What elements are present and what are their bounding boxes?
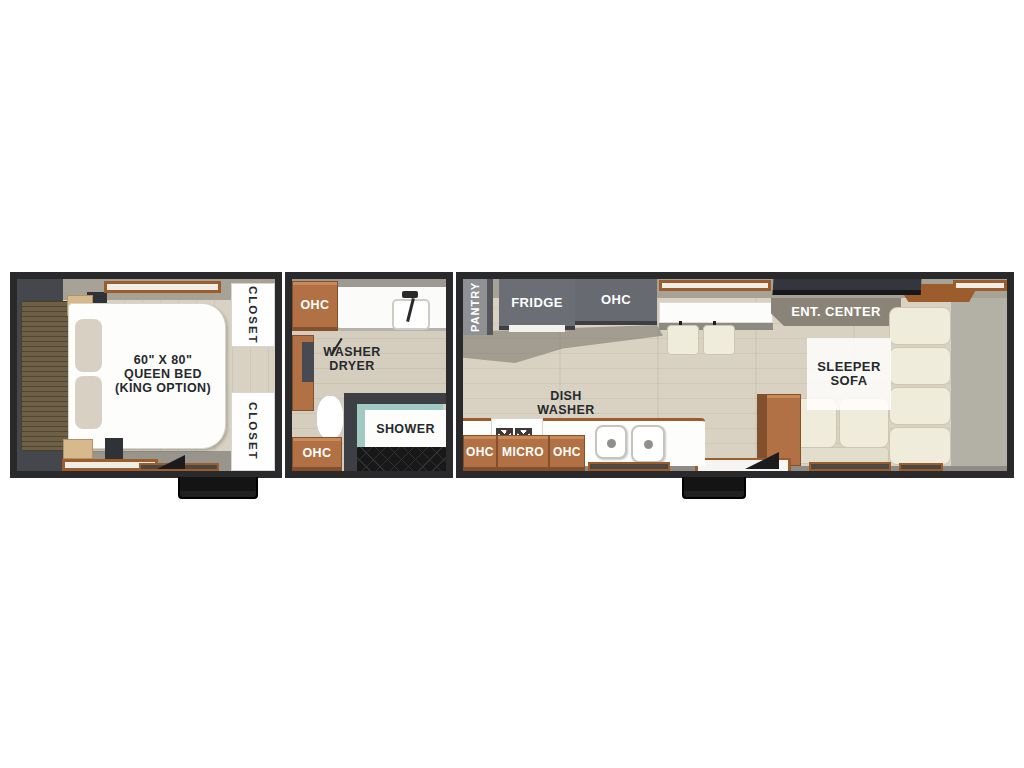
washer-label: WASHER <box>296 345 408 359</box>
fridge: FRIDGE <box>499 279 575 330</box>
bathroom-ohc-top-label: OHC <box>301 298 330 312</box>
kitchen-ohc-top: OHC <box>575 279 657 325</box>
kitchen-ohc-left: OHC <box>463 435 497 471</box>
sofa-back-cushion <box>889 347 951 385</box>
living-bottom-window <box>809 462 891 471</box>
dryer-label: DRYER <box>296 359 408 373</box>
pillow <box>75 376 102 429</box>
pillow <box>75 319 102 372</box>
micro-label: MICRO <box>502 445 544 459</box>
nightstand-bottom <box>63 439 93 459</box>
shower-tile-floor <box>357 447 446 471</box>
kitchen-living-section: PANTRY FRIDGE OHC ENT. CENTER SLEEPER SO… <box>456 272 1014 478</box>
rear-bottom-trim <box>899 463 943 471</box>
bedroom-corner-cabinet-bottom <box>105 438 123 460</box>
bathroom-ohc-bottom: OHC <box>292 437 342 471</box>
bedroom-top-window <box>104 281 221 293</box>
rear-top-trim <box>953 280 1007 291</box>
dish-washer-label: DISH WASHER <box>506 389 626 417</box>
bathroom-ohc-bottom-label: OHC <box>303 446 332 460</box>
dinette-table <box>659 302 773 323</box>
kitchen-bottom-window <box>588 462 670 471</box>
sink-drain <box>644 440 653 449</box>
toilet <box>316 395 344 439</box>
bed-label-type: QUEEN BED <box>99 367 227 381</box>
vanity-counter <box>335 287 446 331</box>
sleeper-sofa-label-box: SLEEPER SOFA <box>807 338 891 410</box>
living-dresser <box>757 394 801 466</box>
pantry: PANTRY <box>463 279 493 335</box>
washer-dryer-label: WASHER DRYER <box>296 345 408 373</box>
entry-step-main <box>682 477 746 499</box>
closet-bottom-label: CLOSET <box>247 402 259 461</box>
pantry-label: PANTRY <box>469 282 481 332</box>
sleeper-sofa-label-2: SOFA <box>831 374 868 388</box>
closet-bottom: CLOSET <box>231 392 275 471</box>
sleeper-sofa-label-1: SLEEPER <box>817 360 880 374</box>
sofa-back-cushion <box>889 387 951 425</box>
kitchen-sink-basin <box>595 425 627 459</box>
sofa-corner-cushion <box>889 427 951 465</box>
ent-center-label: ENT. CENTER <box>791 305 881 319</box>
headboard-panel <box>21 301 73 451</box>
ent-center: ENT. CENTER <box>771 298 901 326</box>
shower-wall-top <box>344 393 446 404</box>
faucet-icon <box>402 291 418 298</box>
kitchen-ohc-right-label: OHC <box>553 445 581 459</box>
entry-step-bedroom <box>178 477 258 499</box>
shower: SHOWER <box>344 393 446 471</box>
bed-label: 60" X 80" QUEEN BED (KING OPTION) <box>99 353 227 395</box>
bathroom-ohc-top: OHC <box>292 281 338 331</box>
dinette-stool <box>703 325 735 355</box>
washer-label-2: WASHER <box>506 403 626 417</box>
closet-top-label: CLOSET <box>247 286 259 345</box>
kitchen-ohc-top-label: OHC <box>601 293 631 307</box>
closet-top: CLOSET <box>231 283 275 347</box>
sofa-back-cushion <box>889 307 951 345</box>
queen-bed: 60" X 80" QUEEN BED (KING OPTION) <box>68 303 226 449</box>
kitchen-ohc-left-label: OHC <box>466 445 494 459</box>
tv <box>773 279 922 295</box>
fridge-label: FRIDGE <box>511 296 563 310</box>
fridge-door-edge <box>509 325 565 332</box>
bed-label-size: 60" X 80" <box>99 353 227 367</box>
sink-drain <box>607 439 616 448</box>
dinette-window <box>659 280 771 291</box>
bedroom-section: 60" X 80" QUEEN BED (KING OPTION) CLOSET… <box>10 272 282 478</box>
shower-wall-left <box>344 393 357 471</box>
shower-label: SHOWER <box>376 422 435 436</box>
dinette-stool <box>667 325 699 355</box>
kitchen-sink-basin <box>631 425 665 463</box>
micro: MICRO <box>497 435 549 471</box>
kitchen-ohc-right: OHC <box>549 435 585 471</box>
rear-floor-area <box>951 279 1007 471</box>
bathroom-section: OHC WASHER DRYER OHC SHOWER <box>285 272 453 478</box>
shower-pan: SHOWER <box>365 410 446 447</box>
bed-label-option: (KING OPTION) <box>99 381 227 395</box>
dish-label: DISH <box>506 389 626 403</box>
